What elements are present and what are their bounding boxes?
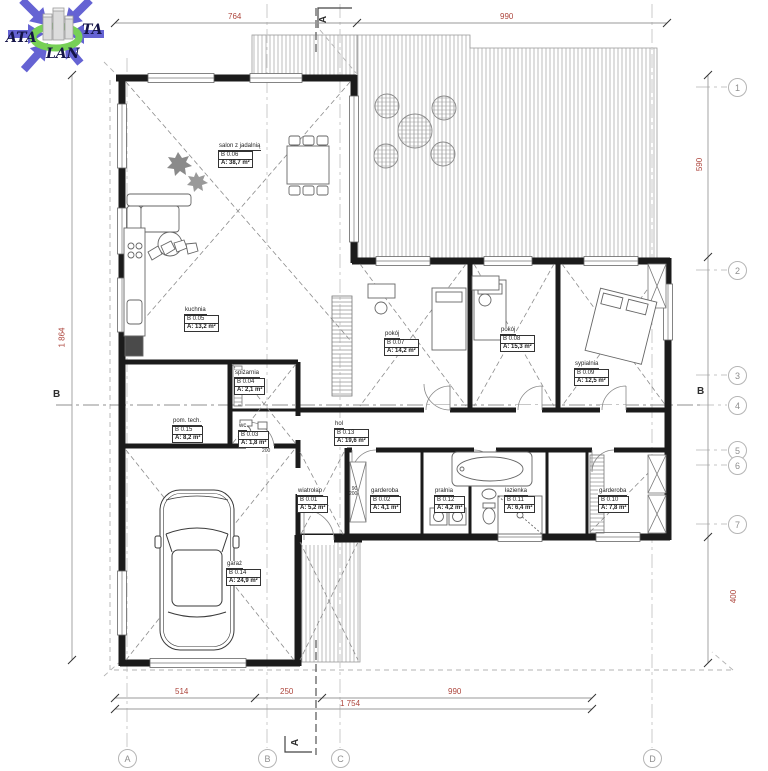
logo-text-left: ATA <box>6 30 37 46</box>
grid-row-7: 7 <box>728 515 747 534</box>
dim-right-590: 590 <box>695 158 704 171</box>
section-marker-b-right: B <box>697 386 704 397</box>
room-label-hol: hol B 0.13A: 19,6 m² <box>334 417 369 446</box>
room-label-wc: wc B 0.03A: 1,8 m² <box>238 419 269 448</box>
grid-col-d: D <box>643 749 662 768</box>
bathroom-fixtures <box>240 420 542 534</box>
room-label-kuchnia: kuchnia B 0.05A: 13,2 m² <box>184 303 219 332</box>
floor-plan-drawing <box>0 0 768 771</box>
room-label-salon: salon z jadalnią B 0.06A: 38,7 m² <box>218 139 261 168</box>
grid-row-3: 3 <box>728 366 747 385</box>
room-label-lazienka: łazienka B 0.11A: 6,4 m² <box>504 484 535 513</box>
room-label-sypialnia: sypialnia B 0.09A: 12,5 m² <box>574 357 609 386</box>
dim-bottom-total: 1 754 <box>340 699 360 708</box>
room-label-pokoj-2: pokój B 0.08A: 15,3 m² <box>500 323 535 352</box>
grid-col-b: B <box>258 749 277 768</box>
dim-top-990: 990 <box>500 12 513 21</box>
room-label-pralnia: pralnia B 0.12A: 4,2 m² <box>434 484 465 513</box>
section-marker-b-left: B <box>53 389 60 400</box>
dim-right-400: 400 <box>729 590 738 603</box>
room-label-garderoba-2: garderoba B 0.10A: 7,8 m² <box>598 484 629 513</box>
door-size-annotation-2: 200 <box>262 449 270 454</box>
room-label-garderoba-1: garderoba B 0.02A: 4,1 m² <box>370 484 401 513</box>
door-size-annotation: 90 200 <box>349 487 357 497</box>
dim-bottom-514: 514 <box>175 687 188 696</box>
logo-text-bottom: LAN <box>46 46 80 62</box>
grid-row-2: 2 <box>728 261 747 280</box>
floor-plan-page: ATA TA LAN salon z jadalnią B 0.06A: 38,… <box>0 0 768 771</box>
room-label-garaz: garaż B 0.14A: 24,9 m² <box>226 557 261 586</box>
room-label-pokoj-1: pokój B 0.07A: 14,2 m² <box>384 327 419 356</box>
grid-row-1: 1 <box>728 78 747 97</box>
dining-set <box>287 136 329 195</box>
grid-row-6: 6 <box>728 456 747 475</box>
dim-bottom-990: 990 <box>448 687 461 696</box>
room-label-wiatrolap: wiatrołap B 0.01A: 5,2 m² <box>297 484 328 513</box>
dim-bottom-250: 250 <box>280 687 293 696</box>
grid-col-c: C <box>331 749 350 768</box>
section-marker-a-bottom: A <box>290 739 301 746</box>
dim-top-764: 764 <box>228 12 241 21</box>
grid-col-a: A <box>118 749 137 768</box>
room-label-spizarnia: spiżarnia B 0.04A: 2,1 m² <box>234 366 265 395</box>
room-label-pom-tech: pom. tech. B 0.15A: 8,2 m² <box>172 414 203 443</box>
section-marker-a-top: A <box>318 16 329 23</box>
dim-left-total: 1 864 <box>58 327 67 347</box>
logo-text-right: TA <box>82 22 103 38</box>
plants <box>167 152 208 192</box>
grid-row-4: 4 <box>728 396 747 415</box>
